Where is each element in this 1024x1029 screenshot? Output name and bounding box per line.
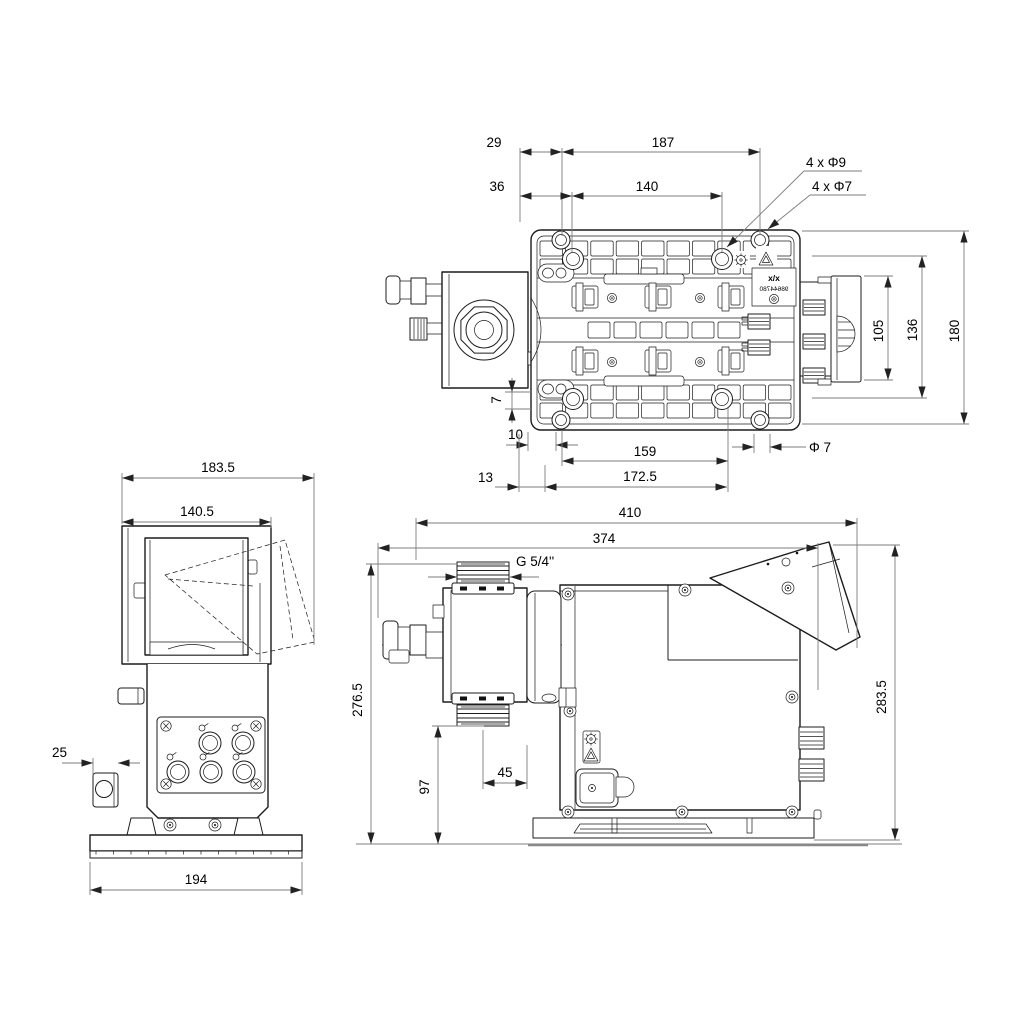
dim-10: 10: [508, 427, 523, 442]
drawing-page: x/x 98644780: [0, 0, 1024, 1024]
cable-gland-body: [400, 281, 411, 299]
adjust-knob: [410, 318, 427, 340]
cable-gland-nut: [411, 278, 426, 304]
front-view: 183.5 140.5 25 194: [52, 460, 315, 895]
dim-194: 194: [185, 872, 208, 887]
side-view: 410 374 G 5/4'' 276.5 97 45: [350, 505, 902, 845]
dim-97: 97: [417, 779, 432, 794]
head-cylinder: [443, 588, 527, 702]
callout-thread-g54: G 5/4'': [516, 554, 554, 569]
callout-4xphi7: 4 x Φ7: [812, 179, 852, 194]
dim-374: 374: [593, 531, 616, 546]
base-plate: [90, 835, 302, 851]
dim-7: 7: [489, 396, 504, 404]
nameplate-partno-mirrored: 98644780: [759, 286, 788, 293]
dim-25: 25: [52, 745, 67, 760]
dim-45: 45: [497, 765, 512, 780]
knob-stem: [427, 323, 442, 334]
dim-410: 410: [619, 505, 642, 520]
cable-gland-cap: [386, 276, 400, 304]
side-view-body: [382, 542, 868, 845]
side-label-plate: [583, 731, 600, 763]
dim-105: 105: [871, 320, 886, 343]
dim-187: 187: [652, 135, 675, 150]
head-adapter: [527, 591, 561, 703]
dim-29: 29: [486, 135, 501, 150]
callout-4xphi9: 4 x Φ9: [806, 155, 846, 170]
top-view: x/x 98644780: [386, 135, 969, 492]
suction-thread: [457, 705, 509, 726]
dim-140-5: 140.5: [180, 504, 214, 519]
side-base: [528, 806, 868, 845]
dim-276-5: 276.5: [350, 683, 365, 717]
control-panel: [145, 538, 248, 655]
dim-283-5: 283.5: [874, 680, 889, 714]
top-view-control-panel-edge: [800, 276, 861, 385]
dim-172-5: 172.5: [623, 469, 657, 484]
dim-159: 159: [634, 444, 657, 459]
top-view-mounting-plate: x/x 98644780: [531, 230, 800, 430]
discharge-thread: [457, 562, 509, 583]
dim-136: 136: [905, 319, 920, 342]
panel-lip: [150, 642, 243, 655]
dim-140: 140: [636, 179, 659, 194]
technical-drawing: x/x 98644780: [0, 0, 1024, 1024]
dosing-head-body: [442, 272, 528, 388]
front-view-body: [90, 526, 315, 858]
dim-36: 36: [489, 179, 504, 194]
side-cable-plugs: [799, 727, 824, 781]
dim-180: 180: [947, 320, 962, 343]
callout-phi7: Φ 7: [809, 440, 831, 455]
nameplate-model: x/x: [768, 273, 780, 283]
cable-gland-stem: [426, 284, 442, 296]
dim-13: 13: [478, 470, 493, 485]
dim-183-5: 183.5: [201, 460, 235, 475]
top-view-dosing-head: [386, 272, 540, 388]
side-view-dosing-head: [382, 562, 565, 726]
